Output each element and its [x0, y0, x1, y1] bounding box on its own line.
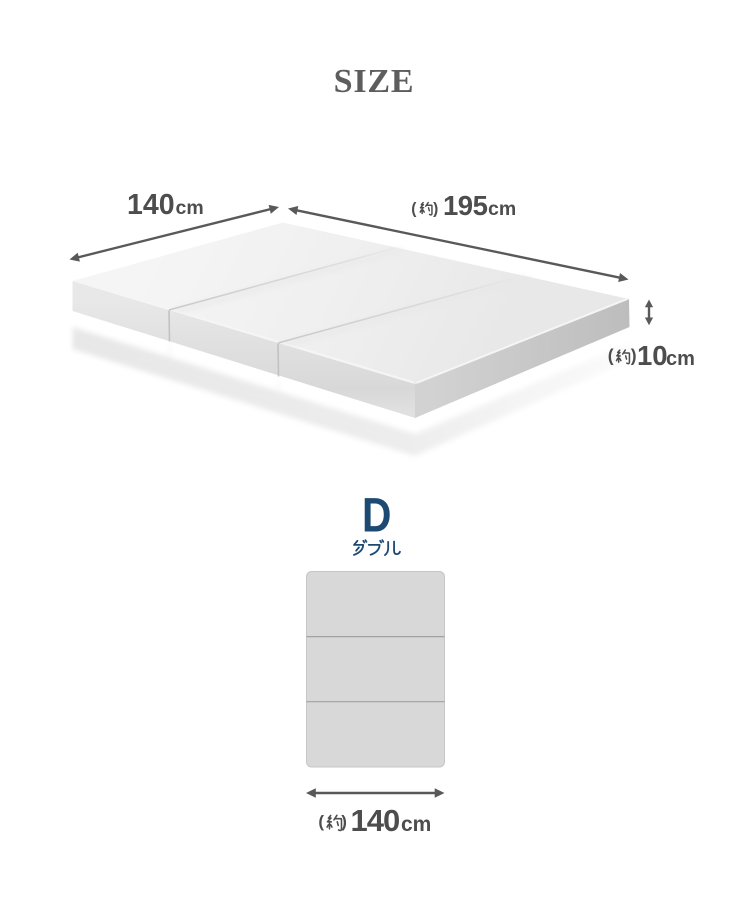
svg-text:): ) [341, 812, 347, 831]
svg-text:(: ( [411, 200, 417, 217]
svg-text:cm: cm [488, 198, 516, 220]
svg-text:(: ( [318, 812, 324, 831]
svg-text:140: 140 [351, 803, 400, 838]
svg-text:): ) [433, 200, 438, 217]
svg-text:140: 140 [127, 189, 175, 221]
svg-text:cm: cm [401, 813, 431, 836]
svg-text:cm: cm [176, 197, 204, 219]
svg-text:SIZE: SIZE [334, 63, 415, 100]
svg-text:): ) [631, 346, 637, 366]
svg-text:195: 195 [443, 190, 488, 221]
svg-text:cm: cm [666, 348, 695, 370]
svg-text:D: D [362, 488, 391, 542]
svg-text:(: ( [608, 346, 614, 366]
svg-text:10: 10 [637, 340, 668, 371]
